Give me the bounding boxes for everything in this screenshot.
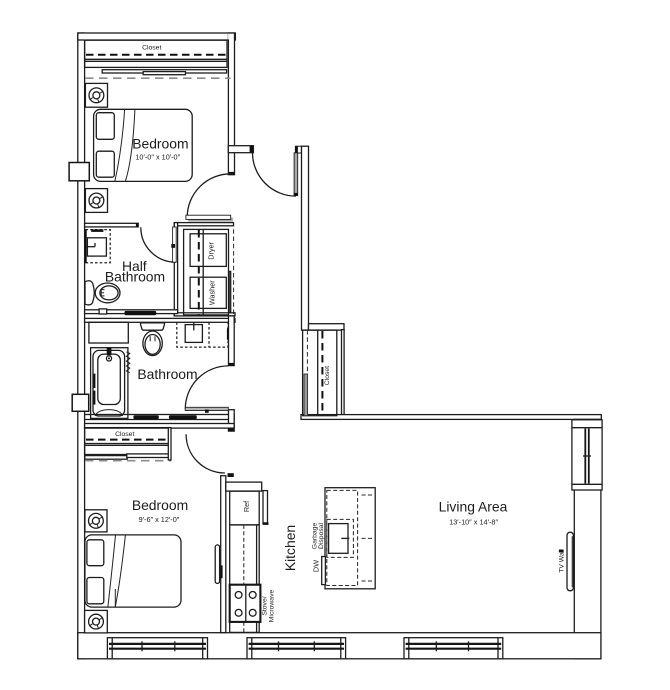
svg-text:10′-0″ x 10′-0″: 10′-0″ x 10′-0″ bbox=[135, 153, 180, 162]
svg-text:Bedroom: Bedroom bbox=[132, 136, 188, 152]
svg-text:Living Area: Living Area bbox=[439, 499, 508, 515]
svg-text:Bathroom: Bathroom bbox=[137, 366, 197, 382]
svg-text:Closet: Closet bbox=[115, 431, 134, 438]
svg-text:13′-10″ x 14′-8″: 13′-10″ x 14′-8″ bbox=[449, 517, 498, 526]
svg-text:9′-6″ x 12′-0″: 9′-6″ x 12′-0″ bbox=[139, 515, 180, 524]
svg-text:Dryer: Dryer bbox=[207, 241, 216, 259]
svg-text:Closet: Closet bbox=[324, 366, 331, 385]
svg-text:Closet: Closet bbox=[142, 45, 161, 52]
svg-text:DW: DW bbox=[311, 560, 320, 572]
svg-text:Bedroom: Bedroom bbox=[132, 497, 188, 513]
svg-text:Microwave: Microwave bbox=[268, 590, 275, 623]
svg-text:Ref: Ref bbox=[242, 500, 251, 512]
svg-text:Kitchen: Kitchen bbox=[282, 525, 298, 571]
svg-text:Disposal: Disposal bbox=[318, 522, 325, 549]
svg-text:Washer: Washer bbox=[207, 280, 216, 305]
svg-text:Bathroom: Bathroom bbox=[105, 269, 165, 285]
